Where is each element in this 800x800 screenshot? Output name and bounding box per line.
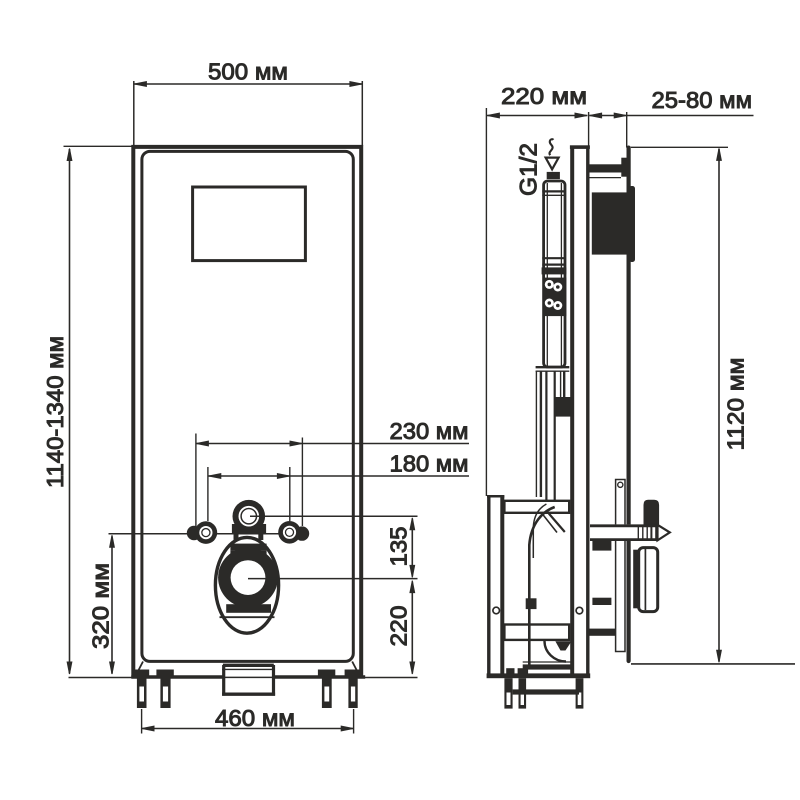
svg-text:1120 мм: 1120 мм <box>723 358 749 451</box>
svg-text:460 мм: 460 мм <box>215 705 295 731</box>
svg-text:135: 135 <box>385 527 411 567</box>
svg-text:180 мм: 180 мм <box>390 451 469 477</box>
svg-text:1140-1340 мм: 1140-1340 мм <box>42 336 68 488</box>
svg-text:230 мм: 230 мм <box>390 418 469 444</box>
svg-text:500 мм: 500 мм <box>208 59 288 85</box>
svg-text:25-80 мм: 25-80 мм <box>652 87 753 113</box>
svg-text:220: 220 <box>385 606 411 647</box>
svg-text:220 мм: 220 мм <box>501 83 587 109</box>
svg-text:320 мм: 320 мм <box>87 563 113 649</box>
svg-text:G1/2: G1/2 <box>515 143 542 196</box>
